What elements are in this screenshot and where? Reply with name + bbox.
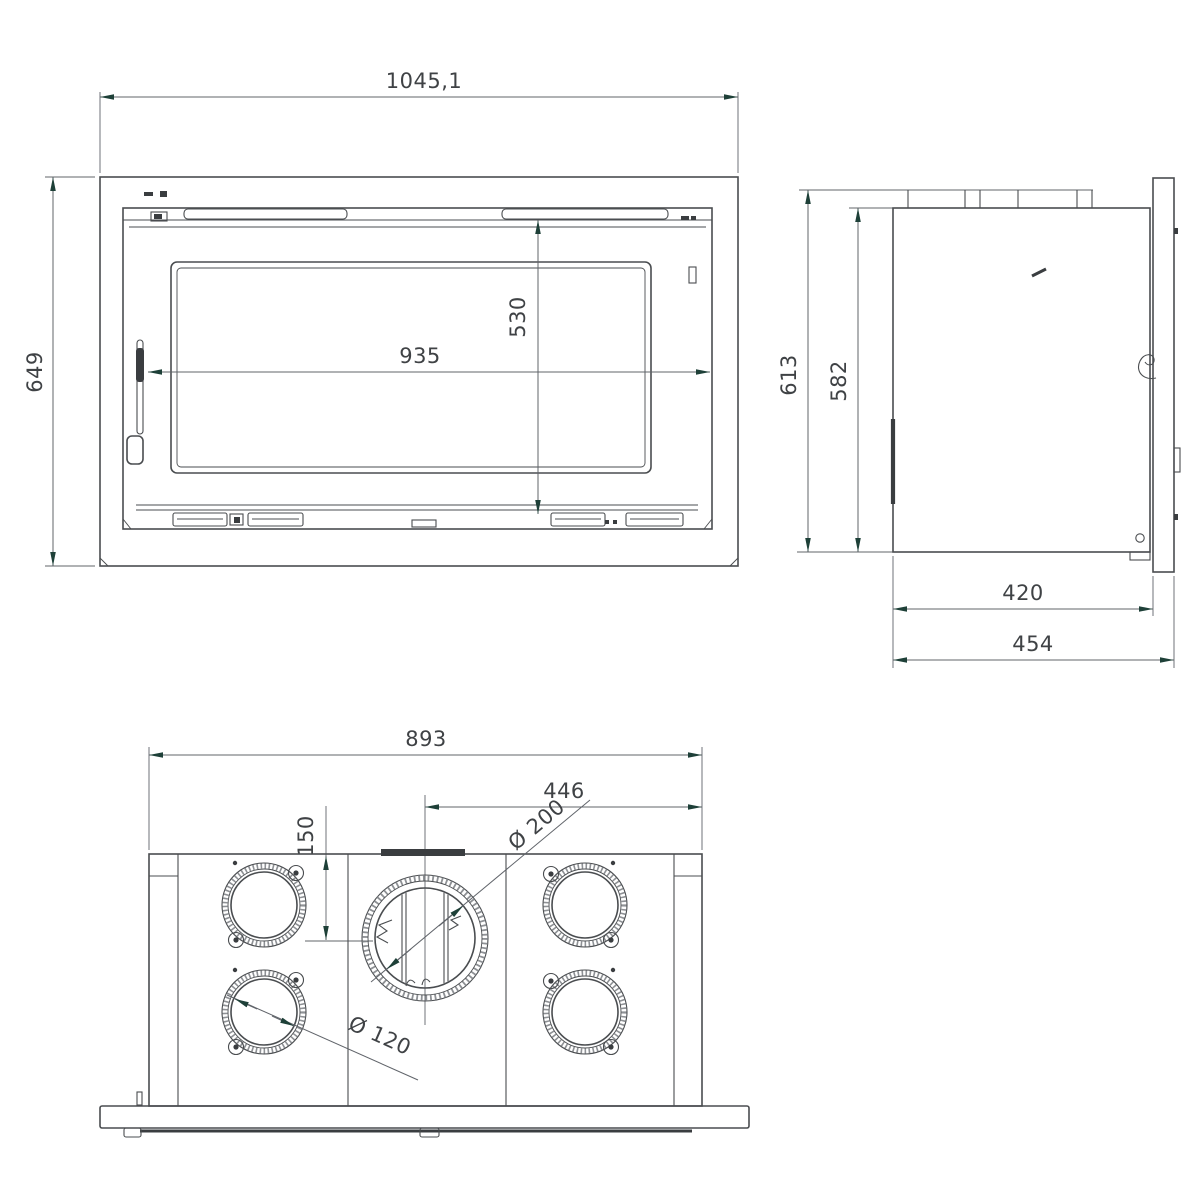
spigot-bore — [552, 872, 618, 938]
door-handle — [127, 340, 144, 464]
vent-slot — [248, 513, 303, 526]
side-body — [893, 190, 1150, 560]
drawing-canvas: 1045,1 649 — [0, 0, 1200, 1200]
dimension-label-door-width: 935 — [399, 344, 441, 368]
handle-latch-knob — [127, 436, 143, 464]
dimension-label-flue-diameter: Ø 200 — [504, 794, 570, 855]
spigot-bore — [552, 979, 618, 1045]
dimension-label-side-height: 613 — [777, 354, 801, 396]
side-height-dimension: 613 — [777, 190, 1093, 552]
side-view: 613 582 420 — [777, 178, 1180, 668]
dimension-label-top-width: 893 — [405, 727, 447, 751]
top-body-outline — [149, 854, 702, 1106]
spigot-ear-hole — [608, 1044, 613, 1049]
spigot-dot — [233, 968, 237, 972]
door-outline — [123, 208, 712, 529]
extension-lines — [100, 92, 738, 173]
vent-slot — [173, 513, 227, 526]
vent-slot — [551, 513, 605, 526]
plate-tick — [1174, 228, 1178, 234]
plinth-pin — [137, 1092, 142, 1105]
door-top-mark — [681, 216, 689, 220]
vent-dot — [605, 520, 609, 524]
spigot-ear-hole — [293, 977, 298, 982]
extension-lines — [149, 747, 702, 850]
technical-drawing-page: 1045,1 649 — [0, 0, 1200, 1200]
front-plate-outline — [1153, 178, 1174, 572]
spigot-dot — [233, 861, 237, 865]
spigot-ear-hole — [548, 978, 553, 983]
casing-corner-chamfers — [100, 558, 738, 566]
spigot-ear-hole — [293, 870, 298, 875]
spigot-outer — [222, 863, 306, 947]
door-top-slot — [502, 209, 668, 219]
spigot-dot — [611, 968, 615, 972]
body-mark — [1032, 269, 1046, 276]
flue-offset-dimension: 150 — [294, 806, 373, 941]
door-top-vent-fill — [154, 214, 162, 219]
air-spigot-top-right — [543, 861, 627, 948]
vent-center-notch — [412, 520, 436, 527]
spigot-outer — [543, 970, 627, 1054]
handle-grip — [136, 348, 144, 382]
dimension-label-flue-offset: 150 — [294, 815, 318, 857]
door-height-dimension: 530 — [506, 220, 538, 514]
arrow-lower — [272, 1016, 294, 1026]
mounting-tabs — [908, 190, 1092, 208]
body-outline — [893, 208, 1150, 552]
door-frame — [123, 208, 712, 529]
front-width-dimension: 1045,1 — [100, 69, 738, 173]
spigot-ear-hole — [233, 1044, 238, 1049]
body-foot — [1130, 552, 1150, 560]
spigot-ring — [549, 869, 621, 941]
plate-tick — [1174, 514, 1178, 520]
casing-mark — [144, 192, 153, 196]
side-inner-height-dimension: 582 — [827, 208, 893, 552]
spigot-bore — [231, 872, 297, 938]
casing-mark — [160, 191, 167, 197]
dimension-label-front-height: 649 — [23, 351, 47, 393]
spigot-ear-hole — [548, 871, 553, 876]
arrow-lower — [387, 949, 411, 969]
spigot-ear-hole — [608, 937, 613, 942]
front-view: 1045,1 649 — [23, 69, 738, 566]
plinth-foot — [124, 1128, 141, 1137]
door-latch-keeper — [689, 267, 696, 283]
plinth-outline — [100, 1106, 749, 1128]
spigot-outer — [543, 863, 627, 947]
arrow-upper — [235, 999, 257, 1009]
arrow-upper — [439, 906, 463, 926]
flue-notch-left — [377, 920, 392, 943]
front-height-dimension: 649 — [23, 177, 95, 566]
spigot-dot — [611, 861, 615, 865]
base-plinth — [100, 1092, 749, 1137]
vent-small-box-fill — [234, 517, 240, 523]
vent-dot — [613, 520, 617, 524]
top-width-dimension: 893 — [149, 727, 702, 850]
front-plate — [1138, 178, 1180, 572]
top-view: 893 446 150 — [100, 727, 749, 1137]
bottom-vent-strip — [136, 505, 698, 527]
body-bolt — [1136, 534, 1144, 542]
spigot-diameter-dimension: Ø 120 — [227, 995, 418, 1080]
damper-lever-slot — [381, 849, 465, 856]
dimension-label-side-depth: 420 — [1002, 581, 1044, 605]
door-top-mark — [691, 216, 696, 220]
spigot-ring — [228, 869, 300, 941]
door-top-slot — [184, 209, 347, 219]
air-spigot-top-left — [222, 861, 306, 948]
dimension-label-side-total-depth: 454 — [1012, 632, 1054, 656]
dimension-label-door-height: 530 — [506, 296, 530, 338]
flue-notch-right — [449, 916, 461, 930]
plate-knob — [1174, 448, 1180, 472]
door-width-dimension: 935 — [148, 344, 710, 372]
air-spigot-bottom-right — [543, 968, 627, 1055]
dimension-label-side-inner-height: 582 — [827, 360, 851, 402]
vent-slot — [626, 513, 683, 526]
spigot-ear-hole — [233, 937, 238, 942]
dimension-label-front-width: 1045,1 — [386, 69, 462, 93]
spigot-ring — [549, 976, 621, 1048]
vent-strip-lines — [136, 505, 698, 510]
top-body-panel-lines — [178, 854, 674, 1106]
